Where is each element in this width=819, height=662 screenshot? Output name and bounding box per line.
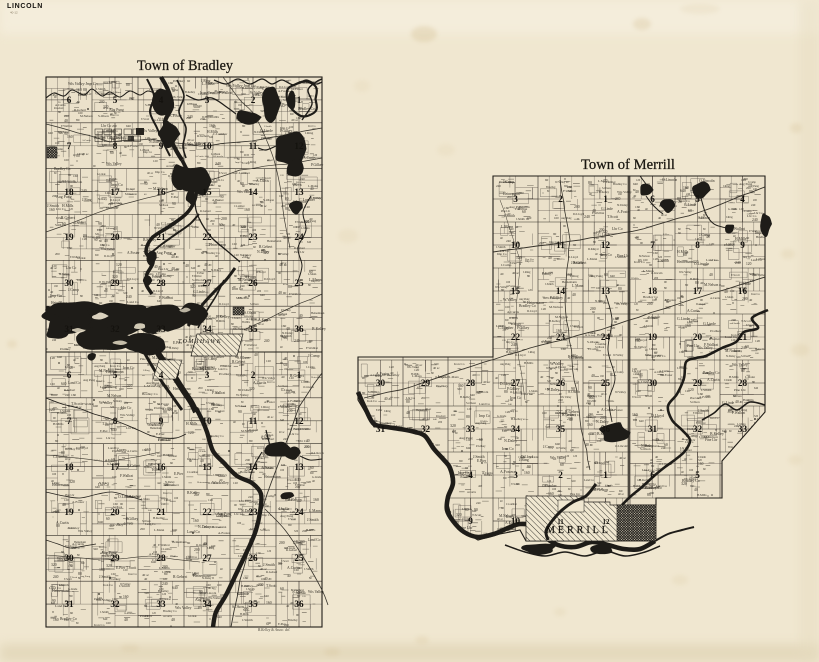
svg-text:29: 29	[110, 278, 120, 288]
svg-text:9: 9	[740, 240, 745, 250]
svg-text:21: 21	[156, 507, 166, 517]
svg-text:Bradley Co: Bradley Co	[54, 167, 71, 171]
svg-text:14: 14	[248, 187, 258, 197]
svg-text:2: 2	[558, 194, 563, 204]
svg-text:18: 18	[64, 187, 74, 197]
svg-text:31: 31	[376, 424, 386, 434]
svg-text:36: 36	[294, 599, 304, 609]
svg-text:10: 10	[511, 516, 521, 526]
svg-text:24: 24	[294, 507, 304, 517]
svg-text:7: 7	[67, 141, 72, 151]
svg-text:6: 6	[650, 194, 655, 204]
svg-text:10: 10	[511, 240, 521, 250]
svg-text:28: 28	[156, 278, 166, 288]
svg-text:34: 34	[202, 324, 212, 334]
svg-text:7: 7	[650, 515, 654, 523]
svg-text:13: 13	[294, 187, 304, 197]
svg-text:1: 1	[603, 194, 608, 204]
svg-text:30: 30	[648, 378, 658, 388]
svg-text:29: 29	[110, 553, 120, 563]
svg-text:36: 36	[601, 424, 611, 434]
svg-text:23: 23	[556, 332, 566, 342]
svg-text:32: 32	[110, 599, 120, 609]
svg-text:5: 5	[113, 370, 118, 380]
svg-text:13: 13	[294, 462, 304, 472]
svg-text:26: 26	[556, 378, 566, 388]
svg-text:23: 23	[248, 232, 258, 242]
svg-text:11: 11	[249, 416, 258, 426]
svg-text:12: 12	[294, 416, 304, 426]
svg-text:25: 25	[294, 278, 304, 288]
svg-text:35: 35	[556, 424, 566, 434]
svg-text:27: 27	[511, 378, 521, 388]
svg-text:32: 32	[693, 424, 703, 434]
svg-text:28: 28	[466, 378, 476, 388]
svg-text:4: 4	[159, 370, 164, 380]
svg-text:27: 27	[202, 553, 212, 563]
svg-text:32: 32	[421, 424, 431, 434]
svg-text:35: 35	[248, 324, 258, 334]
svg-text:34: 34	[202, 599, 212, 609]
svg-text:6: 6	[650, 470, 655, 480]
svg-text:22: 22	[202, 232, 212, 242]
svg-text:15: 15	[202, 462, 212, 472]
svg-text:17: 17	[110, 187, 120, 197]
svg-text:MERRILL: MERRILL	[546, 525, 611, 536]
svg-text:10: 10	[202, 141, 212, 151]
svg-text:B.Kelley & Assoc. del.: B.Kelley & Assoc. del.	[258, 628, 290, 632]
svg-text:24: 24	[601, 332, 611, 342]
svg-text:7: 7	[650, 240, 655, 250]
svg-text:6: 6	[67, 370, 72, 380]
svg-text:25: 25	[601, 378, 611, 388]
svg-text:7: 7	[67, 416, 72, 426]
svg-text:24: 24	[294, 232, 304, 242]
svg-text:5: 5	[113, 95, 118, 105]
svg-text:1: 1	[603, 470, 608, 480]
svg-text:8: 8	[113, 416, 118, 426]
svg-text:26: 26	[248, 553, 258, 563]
svg-text:40-12: 40-12	[10, 11, 18, 15]
svg-text:30: 30	[64, 278, 74, 288]
svg-text:22: 22	[202, 507, 212, 517]
svg-text:31: 31	[648, 424, 658, 434]
svg-text:34: 34	[511, 424, 521, 434]
svg-text:2: 2	[251, 370, 256, 380]
svg-text:19: 19	[64, 232, 74, 242]
svg-text:33: 33	[156, 599, 166, 609]
svg-text:17: 17	[693, 286, 703, 296]
svg-text:3: 3	[205, 95, 210, 105]
svg-text:20: 20	[110, 507, 120, 517]
svg-text:13: 13	[601, 286, 611, 296]
svg-text:4: 4	[468, 470, 473, 480]
svg-text:8: 8	[695, 240, 700, 250]
svg-text:11: 11	[249, 141, 258, 151]
svg-text:10: 10	[202, 416, 212, 426]
svg-text:19: 19	[64, 507, 74, 517]
svg-text:5: 5	[695, 470, 700, 480]
svg-text:11: 11	[556, 240, 565, 250]
svg-text:18: 18	[648, 286, 658, 296]
svg-text:25: 25	[294, 553, 304, 563]
svg-text:29: 29	[421, 378, 431, 388]
svg-text:12: 12	[294, 141, 304, 151]
svg-text:LINCOLN: LINCOLN	[7, 3, 43, 10]
svg-text:12: 12	[603, 518, 611, 526]
svg-text:5: 5	[695, 194, 700, 204]
svg-text:14: 14	[556, 286, 566, 296]
svg-text:15: 15	[511, 286, 521, 296]
svg-text:Town of Bradley: Town of Bradley	[137, 58, 234, 74]
svg-text:27: 27	[202, 278, 212, 288]
svg-text:35: 35	[248, 599, 258, 609]
svg-text:Town of Merrill: Town of Merrill	[581, 157, 675, 173]
svg-text:36: 36	[294, 324, 304, 334]
svg-text:22: 22	[511, 332, 521, 342]
svg-text:15: 15	[202, 187, 212, 197]
svg-text:30: 30	[376, 378, 386, 388]
svg-text:19: 19	[648, 332, 658, 342]
svg-text:31: 31	[64, 324, 74, 334]
svg-text:16: 16	[156, 462, 166, 472]
svg-text:26: 26	[248, 278, 258, 288]
svg-text:TOMAHAWK: TOMAHAWK	[178, 339, 222, 345]
svg-text:17: 17	[110, 462, 120, 472]
svg-text:3: 3	[513, 194, 518, 204]
svg-text:14: 14	[248, 462, 258, 472]
svg-text:21: 21	[156, 232, 166, 242]
svg-text:9: 9	[159, 141, 164, 151]
svg-text:20: 20	[693, 332, 703, 342]
svg-text:21: 21	[738, 332, 748, 342]
svg-text:16: 16	[156, 187, 166, 197]
svg-text:23: 23	[248, 507, 258, 517]
svg-text:18: 18	[64, 462, 74, 472]
svg-text:4: 4	[740, 194, 745, 204]
svg-text:Wis Valley Imp Co: Wis Valley Imp Co	[226, 83, 255, 88]
svg-text:6: 6	[67, 95, 72, 105]
svg-text:1: 1	[297, 370, 302, 380]
svg-text:32: 32	[110, 324, 120, 334]
svg-text:20: 20	[110, 232, 120, 242]
svg-text:3: 3	[513, 470, 518, 480]
svg-text:33: 33	[156, 324, 166, 334]
svg-text:2: 2	[558, 470, 563, 480]
svg-text:29: 29	[693, 378, 703, 388]
svg-text:9: 9	[159, 416, 164, 426]
svg-text:8: 8	[113, 141, 118, 151]
svg-text:2: 2	[251, 95, 256, 105]
svg-text:33: 33	[738, 424, 748, 434]
svg-text:1: 1	[297, 95, 302, 105]
svg-text:16: 16	[738, 286, 748, 296]
svg-text:33: 33	[466, 424, 476, 434]
svg-text:28: 28	[156, 553, 166, 563]
svg-text:31: 31	[64, 599, 74, 609]
svg-text:9: 9	[468, 516, 473, 526]
svg-text:11: 11	[557, 518, 564, 526]
svg-text:28: 28	[738, 378, 748, 388]
svg-text:30: 30	[64, 553, 74, 563]
svg-text:3: 3	[205, 370, 210, 380]
svg-text:4: 4	[159, 95, 164, 105]
svg-text:12: 12	[601, 240, 611, 250]
svg-text:Wis Valley Imp Co: Wis Valley Imp Co	[68, 81, 97, 86]
